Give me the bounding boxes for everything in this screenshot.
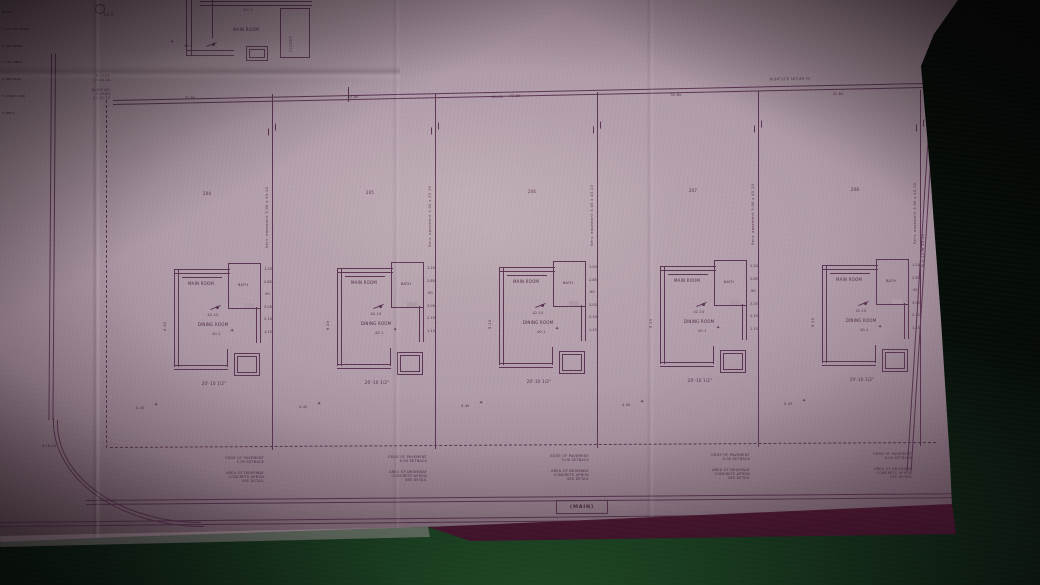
photo-of-blueprint: NOTES 1. ALL DIM IN MTS 2. SEE DETAIL 3.…	[0, 0, 1040, 585]
photo-vignette	[0, 0, 1040, 585]
